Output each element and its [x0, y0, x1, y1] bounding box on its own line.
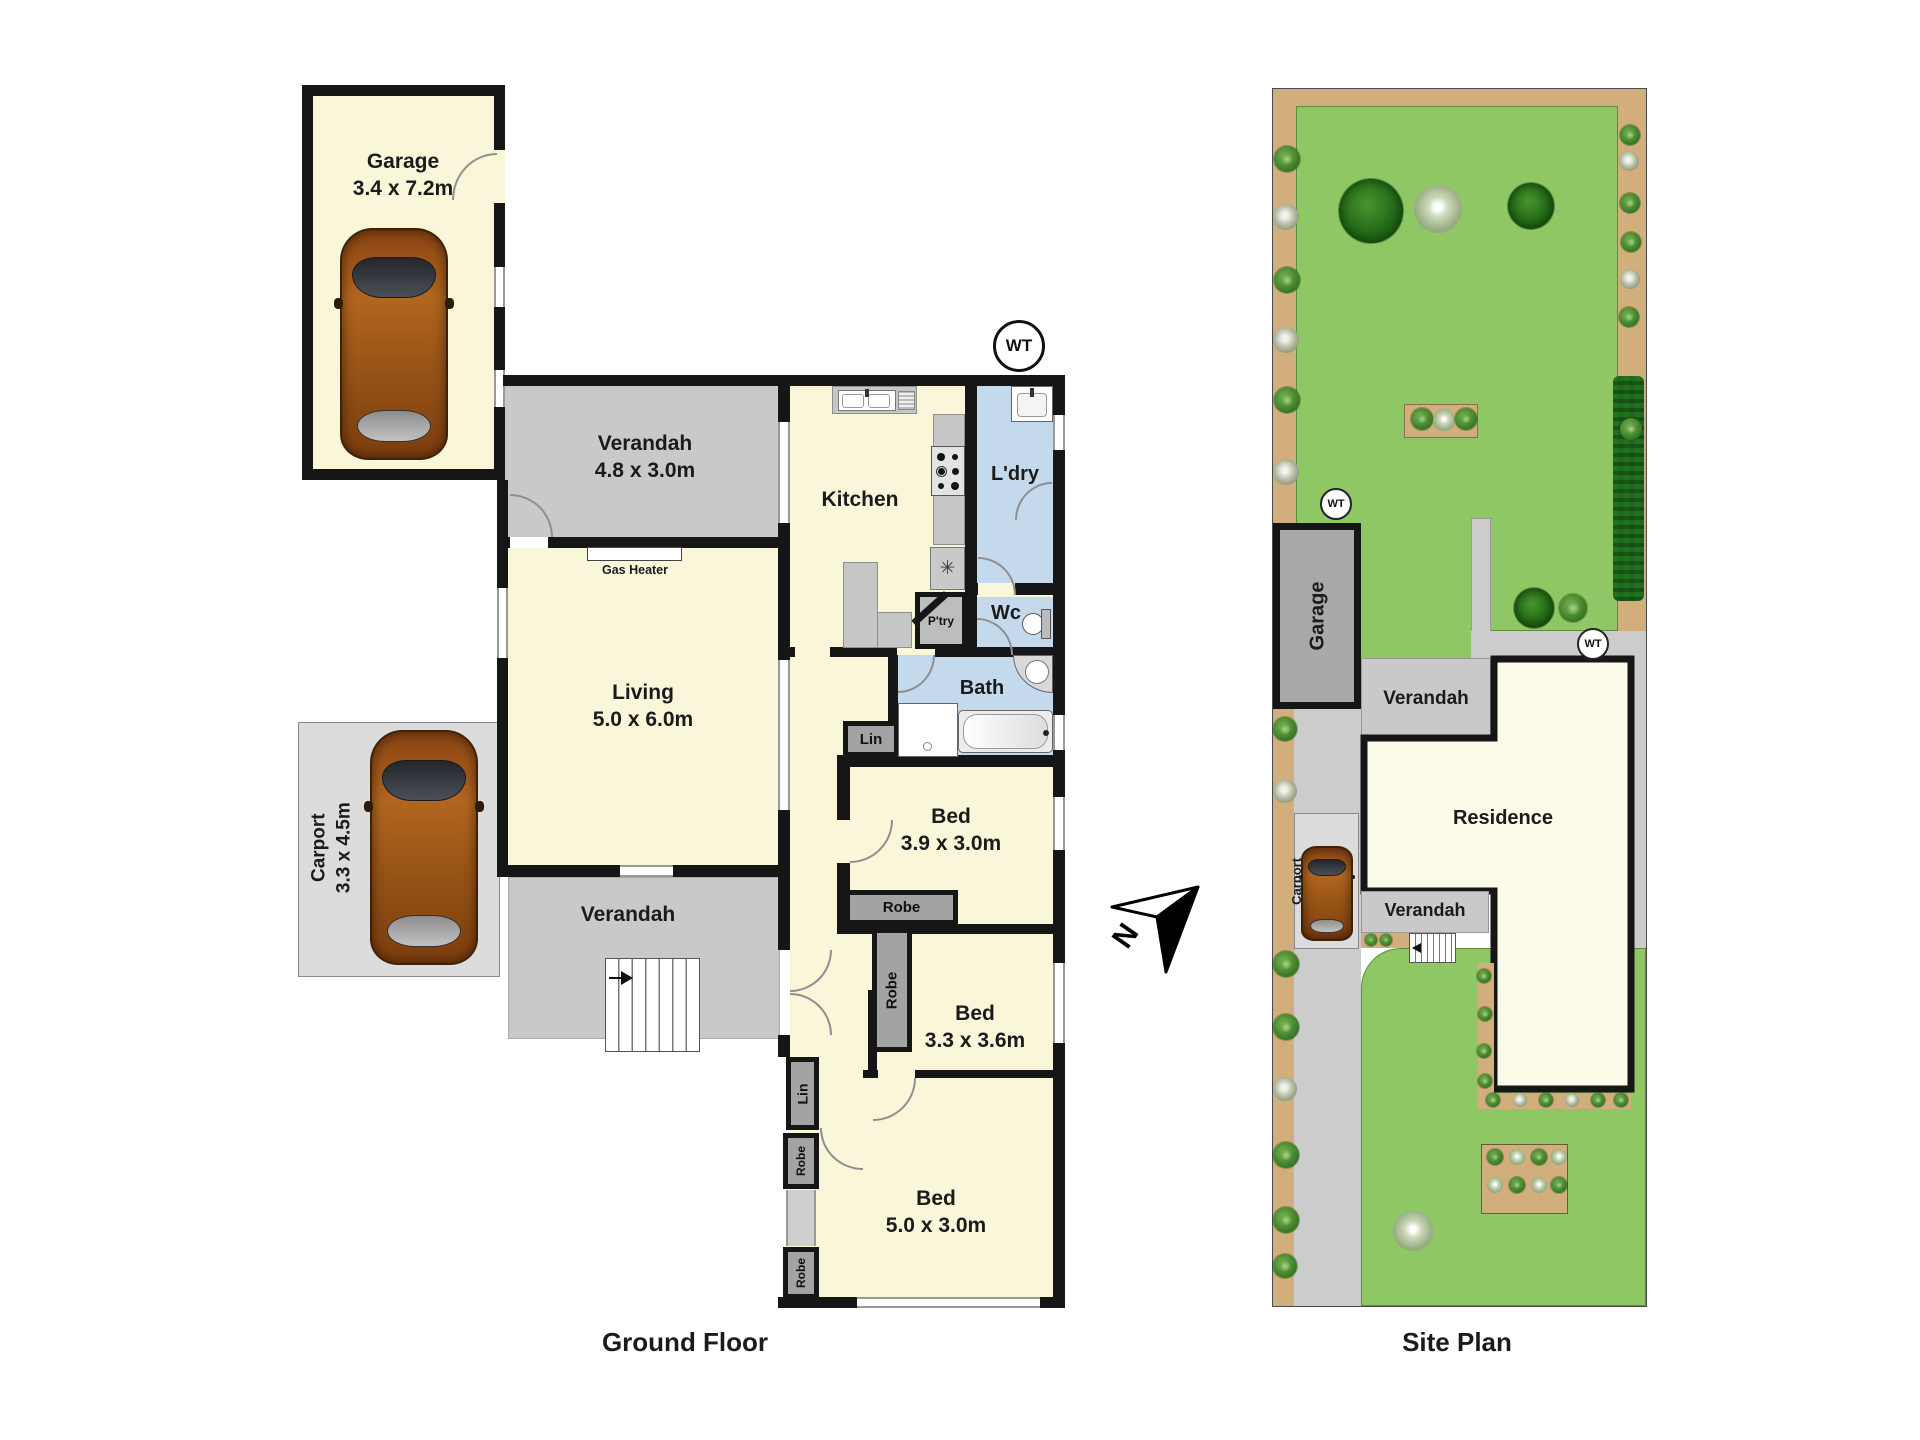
- closet-lin-1: Lin: [843, 721, 899, 757]
- plant-icon: [1273, 1254, 1297, 1278]
- plant-icon: [1274, 387, 1300, 413]
- plant-icon: [1477, 969, 1491, 983]
- dishwasher-icon: ✳: [940, 557, 956, 580]
- room-label-verandah-mid: Verandah: [528, 901, 728, 928]
- closet-label: Lin: [795, 1083, 811, 1104]
- ground-floor-plan: Lin Robe Robe Lin Robe Robe P'try: [0, 0, 1100, 1440]
- plant-icon: [1620, 269, 1640, 289]
- wall: [778, 375, 790, 422]
- wall: [302, 85, 313, 480]
- room-label-wc: Wc: [956, 600, 1056, 626]
- plant-icon: [1509, 1177, 1525, 1193]
- closet-robe-1: Robe: [845, 890, 958, 925]
- plant-icon: [1619, 151, 1639, 171]
- plant-icon: [1620, 418, 1642, 440]
- shower: [898, 703, 958, 757]
- north-label: N: [1106, 918, 1145, 955]
- wall: [494, 307, 505, 370]
- sink-basin: [842, 394, 864, 408]
- closet-robe-4: Robe: [783, 1247, 819, 1299]
- wall: [790, 647, 795, 657]
- trough-tap: [1030, 388, 1034, 397]
- stairs-arrow: [621, 971, 633, 985]
- room-label-bed3: Bed 5.0 x 3.0m: [831, 1185, 1041, 1240]
- plant-icon: [1539, 1093, 1553, 1107]
- room-label-kitchen: Kitchen: [770, 486, 950, 513]
- north-arrow-icon: N: [1090, 860, 1220, 990]
- plant-icon: [1620, 125, 1640, 145]
- site-plants-layer: [1273, 89, 1646, 1306]
- plant-icon: [1273, 717, 1297, 741]
- wall: [494, 407, 505, 480]
- window: [778, 660, 790, 810]
- wall: [1015, 583, 1065, 595]
- plant-icon: [1513, 1093, 1527, 1107]
- title-site-plan: Site Plan: [1257, 1326, 1657, 1360]
- bath-tap: [1043, 730, 1049, 736]
- plant-icon: [1273, 1077, 1297, 1101]
- plant-icon: [1273, 204, 1299, 230]
- water-tank-badge: WT: [993, 320, 1045, 372]
- plant-icon: [1273, 459, 1299, 485]
- plant-icon: [1531, 1149, 1547, 1165]
- plant-icon: [1531, 1177, 1547, 1193]
- plant-icon: [1551, 1149, 1567, 1165]
- plant-icon: [1273, 327, 1299, 353]
- room-label-bath: Bath: [932, 675, 1032, 701]
- plant-icon: [1559, 594, 1587, 622]
- plant-icon: [1274, 146, 1300, 172]
- plant-icon: [1621, 232, 1641, 252]
- closet-label: Lin: [860, 731, 883, 748]
- plant-icon: [1487, 1177, 1503, 1193]
- wall: [302, 469, 505, 480]
- plant-icon: [1619, 307, 1639, 327]
- plant-icon: [1487, 1149, 1503, 1165]
- plant-icon: [1591, 1093, 1605, 1107]
- kitchen-bench: [877, 612, 912, 648]
- bathtub-inner: [963, 714, 1048, 749]
- closet-robe-3: Robe: [783, 1133, 819, 1189]
- room-label-bed2: Bed 3.3 x 3.6m: [870, 1000, 1080, 1055]
- floorplan-canvas: Lin Robe Robe Lin Robe Robe P'try: [0, 0, 1920, 1440]
- room-label-garage: Garage 3.4 x 7.2m: [303, 148, 503, 203]
- plant-icon: [1620, 193, 1640, 213]
- window: [857, 1297, 1040, 1308]
- gas-heater-label: Gas Heater: [560, 562, 710, 578]
- plant-icon: [1565, 1093, 1579, 1107]
- room-label-verandah-top: Verandah 4.8 x 3.0m: [540, 430, 750, 485]
- plant-icon: [1509, 1149, 1525, 1165]
- room-label-living: Living 5.0 x 6.0m: [538, 679, 748, 734]
- site-plan: Garage Verandah Residence Verandah Carpo…: [1272, 88, 1647, 1307]
- plant-icon: [1273, 1142, 1299, 1168]
- plant-icon: [1274, 267, 1300, 293]
- wall: [863, 1070, 878, 1078]
- kitchen-sink: [838, 390, 896, 411]
- wall: [302, 85, 505, 96]
- sink-basin: [868, 394, 890, 408]
- closet-label: Robe: [794, 1258, 808, 1288]
- sink-tap: [865, 389, 869, 397]
- plant-icon: [1514, 588, 1554, 628]
- wall: [915, 1070, 1065, 1078]
- window: [494, 267, 505, 307]
- plant-icon: [1551, 1177, 1567, 1193]
- closet-label: Robe: [883, 899, 921, 916]
- title-ground-floor: Ground Floor: [485, 1326, 885, 1360]
- window: [1053, 415, 1065, 450]
- room-label-bed1: Bed 3.9 x 3.0m: [846, 803, 1056, 858]
- plant-icon: [1508, 183, 1554, 229]
- window: [497, 588, 508, 658]
- plant-icon: [1273, 1207, 1299, 1233]
- kitchen-bench: [843, 562, 878, 648]
- closet-lin-2: Lin: [786, 1057, 819, 1130]
- plant-icon: [1411, 408, 1433, 430]
- wall: [778, 1035, 790, 1057]
- closet-label: Robe: [794, 1146, 808, 1176]
- plant-icon: [1477, 1044, 1491, 1058]
- wall: [494, 85, 505, 150]
- plant-icon: [1414, 185, 1462, 233]
- plant-icon: [1273, 779, 1297, 803]
- plant-icon: [1365, 934, 1377, 946]
- plant-icon: [1478, 1007, 1492, 1021]
- laundry-trough: [1011, 386, 1053, 422]
- plant-icon: [1273, 1014, 1299, 1040]
- plant-icon: [1433, 409, 1455, 431]
- bathtub: [958, 710, 1053, 753]
- room-label-pantry: P'try: [928, 614, 954, 628]
- window: [620, 865, 673, 877]
- wall: [965, 386, 977, 597]
- window: [1053, 715, 1065, 750]
- wall: [830, 647, 897, 657]
- plant-icon: [1614, 1093, 1628, 1107]
- plant-icon: [1455, 408, 1477, 430]
- wall: [778, 810, 790, 950]
- stairs: [605, 958, 700, 1052]
- plant-icon: [1273, 951, 1299, 977]
- plant-icon: [1393, 1211, 1433, 1251]
- car-icon: [340, 228, 448, 460]
- shower-drain: [923, 742, 932, 751]
- room-label-carport: Carport3.3 x 4.5m: [245, 763, 420, 933]
- room-label-laundry: L'dry: [965, 461, 1065, 487]
- plant-icon: [1380, 934, 1392, 946]
- drainer: [898, 391, 915, 410]
- gas-heater: [587, 547, 682, 561]
- plant-icon: [1478, 1074, 1492, 1088]
- window: [786, 1190, 816, 1246]
- wall: [497, 480, 508, 877]
- dishwasher: ✳: [930, 547, 965, 590]
- plant-icon: [1339, 179, 1403, 243]
- plant-icon: [1486, 1093, 1500, 1107]
- wall: [494, 203, 505, 267]
